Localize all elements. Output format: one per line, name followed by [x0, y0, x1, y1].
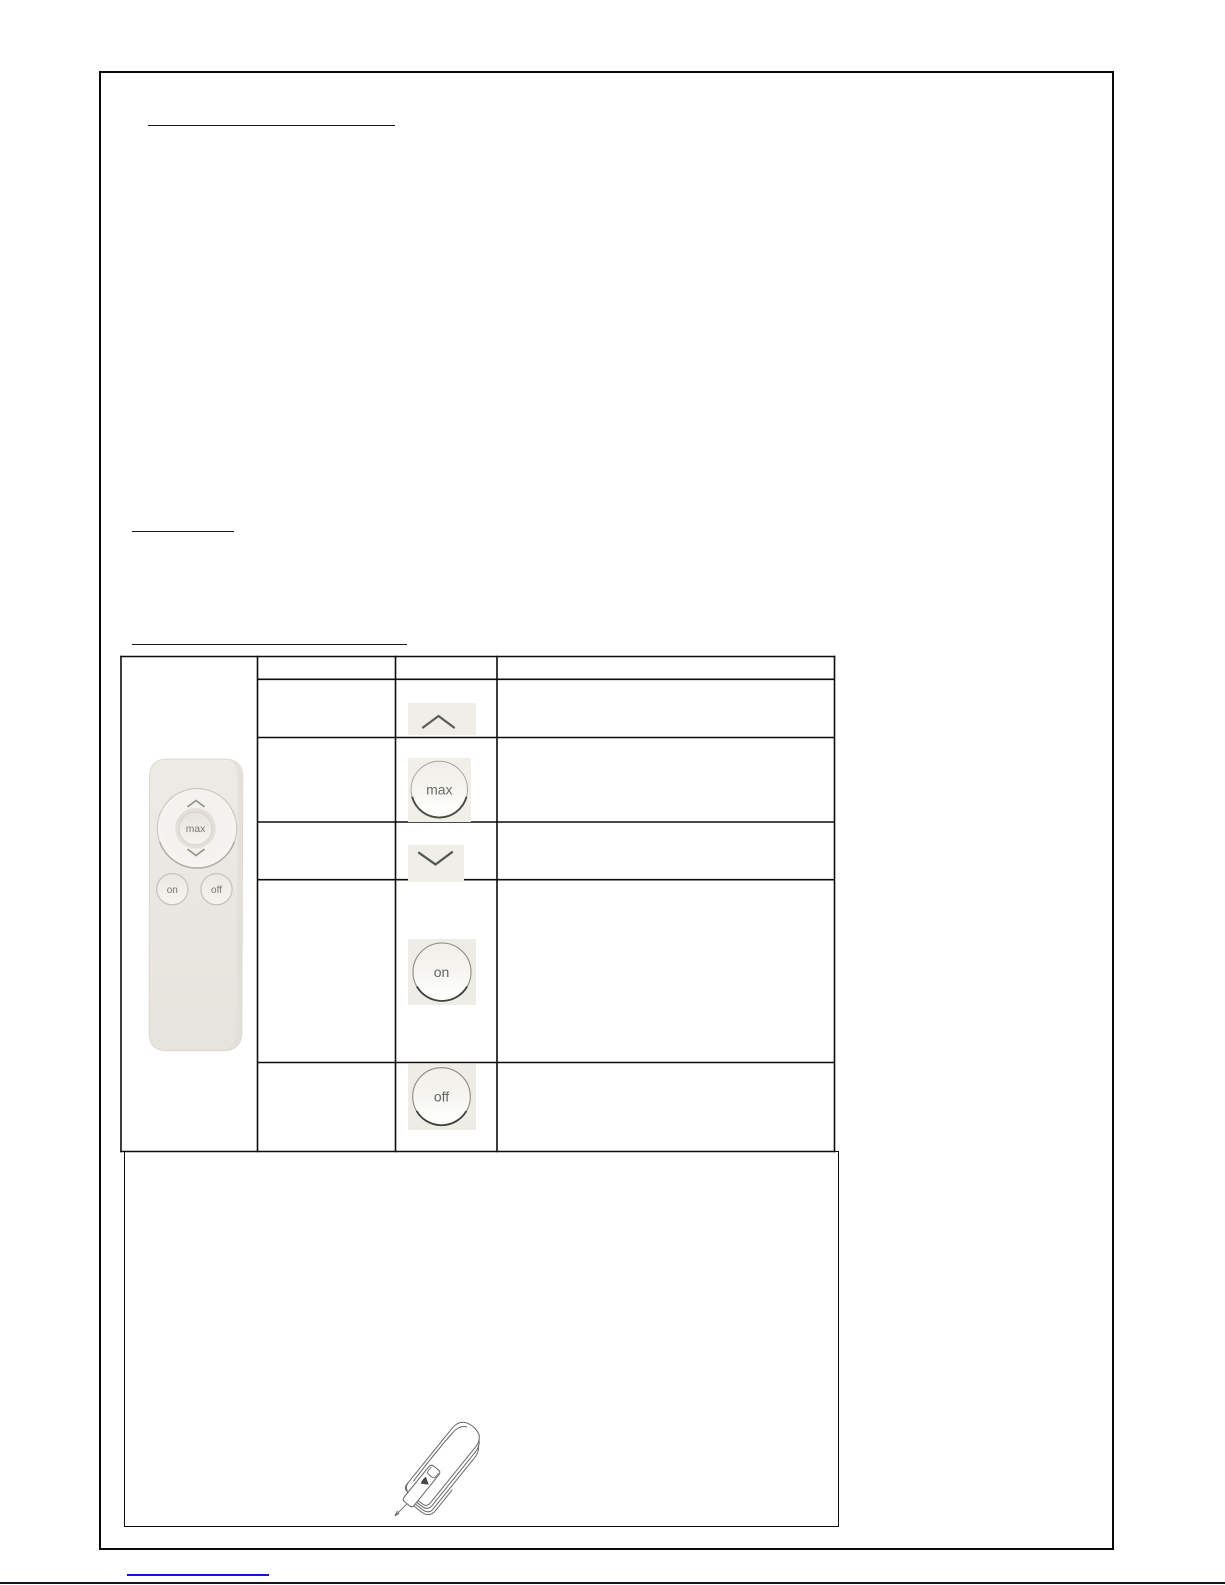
- svg-text:on: on: [434, 964, 450, 980]
- svg-text:max: max: [426, 782, 452, 798]
- svg-text:off: off: [211, 885, 222, 896]
- svg-text:off: off: [434, 1089, 449, 1105]
- svg-text:on: on: [167, 885, 178, 896]
- svg-text:max: max: [186, 824, 206, 835]
